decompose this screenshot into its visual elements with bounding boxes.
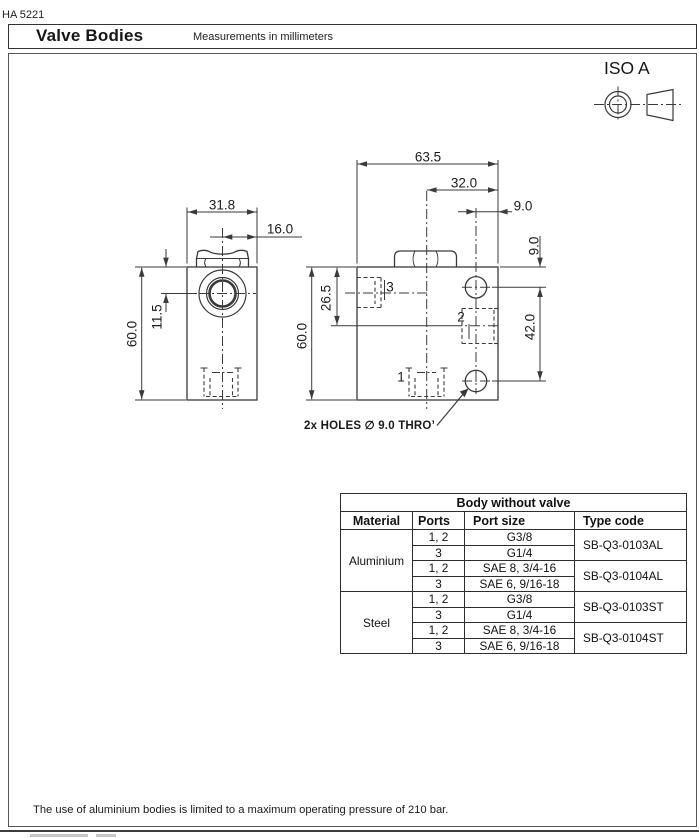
pressure-limit-note: The use of aluminium bodies is limited t… (33, 804, 448, 816)
col-header-material: Material (341, 512, 413, 530)
datasheet-page: HA 5221 Valve Bodies Measurements in mil… (0, 0, 699, 838)
table-title: Body without valve (341, 494, 687, 512)
document-code: HA 5221 (2, 9, 44, 21)
cutoff-content-fragment (30, 834, 88, 837)
dim-label-front-offset: 16.0 (267, 222, 293, 237)
dim-label-port3-center: 26.5 (319, 285, 334, 311)
port-size-cell: SAE 6, 9/16-18 (465, 576, 575, 592)
dim-label-front-width: 31.8 (209, 198, 235, 213)
port-size-cell: SAE 8, 3/4-16 (465, 561, 575, 577)
ports-cell: 1, 2 (413, 530, 465, 546)
type-code-cell: SB-Q3-0103ST (575, 592, 687, 623)
dim-label-side-offset: 32.0 (451, 176, 477, 191)
port-size-cell: G3/8 (465, 530, 575, 546)
port-size-cell: SAE 8, 3/4-16 (465, 623, 575, 639)
port-size-cell: G1/4 (465, 545, 575, 561)
material-cell: Aluminium (341, 530, 413, 592)
port-3-label: 3 (386, 280, 394, 295)
port-2-label: 2 (457, 310, 465, 325)
port-size-cell: G1/4 (465, 607, 575, 623)
section-divider (0, 830, 699, 832)
ports-cell: 1, 2 (413, 592, 465, 608)
dim-label-side-height: 60.0 (295, 323, 310, 349)
col-header-type-code: Type code (575, 512, 687, 530)
table-row: Steel 1, 2 G3/8 SB-Q3-0103ST (341, 592, 687, 608)
table-row: Aluminium 1, 2 G3/8 SB-Q3-0103AL (341, 530, 687, 546)
ports-cell: 1, 2 (413, 623, 465, 639)
ports-cell: 1, 2 (413, 561, 465, 577)
dim-label-front-port-center: 11.5 (150, 304, 165, 329)
dim-label-hole-edge: 9.0 (514, 199, 533, 214)
ports-cell: 3 (413, 545, 465, 561)
page-subtitle: Measurements in millimeters (193, 31, 333, 43)
ports-cell: 3 (413, 607, 465, 623)
content-frame (8, 53, 697, 827)
ports-cell: 3 (413, 576, 465, 592)
dim-label-hole-top: 9.0 (527, 237, 542, 256)
material-cell: Steel (341, 592, 413, 654)
dim-label-side-width: 63.5 (415, 150, 441, 165)
port-1-label: 1 (397, 370, 405, 385)
type-code-cell: SB-Q3-0104ST (575, 623, 687, 654)
port-size-cell: SAE 6, 9/16-18 (465, 638, 575, 654)
col-header-port-size: Port size (465, 512, 575, 530)
type-code-cell: SB-Q3-0103AL (575, 530, 687, 561)
dim-label-hole-spacing: 42.0 (523, 314, 538, 340)
type-code-cell: SB-Q3-0104AL (575, 561, 687, 592)
ports-cell: 3 (413, 638, 465, 654)
port-size-cell: G3/8 (465, 592, 575, 608)
dim-label-front-height: 60.0 (125, 321, 140, 347)
spec-table: Body without valve Material Ports Port s… (340, 493, 687, 654)
cutoff-content-fragment (96, 834, 116, 837)
page-title: Valve Bodies (36, 26, 143, 46)
holes-note: 2x HOLES ∅ 9.0 THRO’ (304, 418, 435, 432)
col-header-ports: Ports (413, 512, 465, 530)
iso-projection-label: ISO A (604, 58, 650, 79)
